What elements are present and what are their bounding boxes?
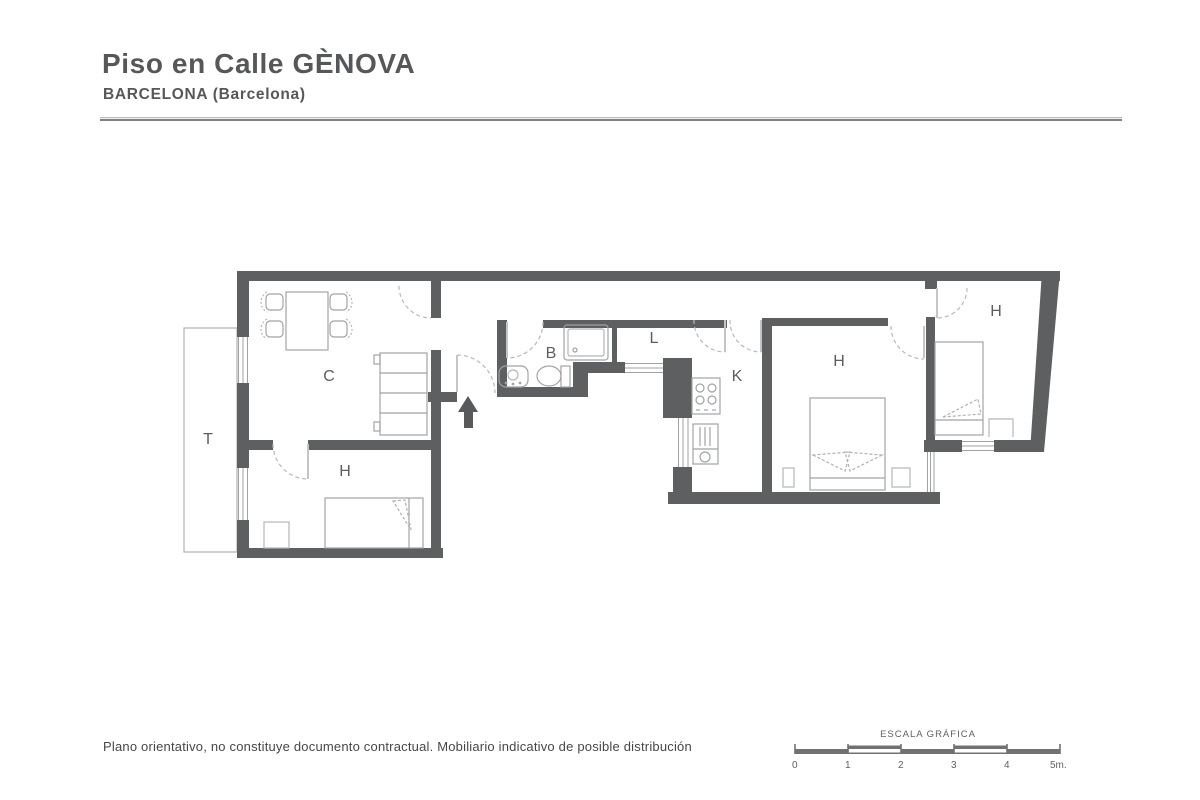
washing-machine-icon [693, 424, 718, 464]
scale-bar-ticks: 0 1 2 3 4 5m. [792, 760, 1067, 771]
dining-table-icon [286, 292, 328, 350]
chair-icon [261, 292, 352, 339]
scale-bar: ESCALA GRÁFICA 0 1 2 3 4 [792, 729, 1067, 771]
door-leaves [308, 288, 937, 479]
stove-icon [692, 378, 720, 414]
room-label-bedroom2: H [833, 353, 845, 370]
floor-plan: T C H B L K H H ESCALA GRÁFICA [0, 0, 1200, 800]
door-arcs [273, 286, 967, 479]
room-label-kitchen: K [732, 368, 743, 385]
scale-tick: 3 [951, 760, 957, 771]
room-label-bedroom3: H [990, 303, 1002, 320]
scale-tick: 5m. [1050, 760, 1067, 771]
disclaimer-text: Plano orientativo, no constituye documen… [103, 739, 692, 754]
room-label-bathroom: B [546, 345, 557, 362]
scale-bar-title: ESCALA GRÁFICA [880, 729, 976, 740]
room-label-terrace: T [203, 431, 213, 448]
room-label-bedroom1: H [339, 463, 351, 480]
toilet-icon [537, 366, 570, 387]
scale-tick: 0 [792, 760, 798, 771]
shower-icon [564, 325, 608, 360]
scale-tick: 1 [845, 760, 851, 771]
entrance-arrow-icon [458, 396, 478, 428]
scale-tick: 4 [1004, 760, 1010, 771]
furniture [261, 292, 1013, 548]
sofa-icon [374, 353, 427, 435]
page: Piso en Calle GÈNOVA BARCELONA (Barcelon… [0, 0, 1200, 800]
scale-tick: 2 [898, 760, 904, 771]
room-label-laundry: L [650, 330, 659, 347]
room-label-dining: C [323, 368, 335, 385]
